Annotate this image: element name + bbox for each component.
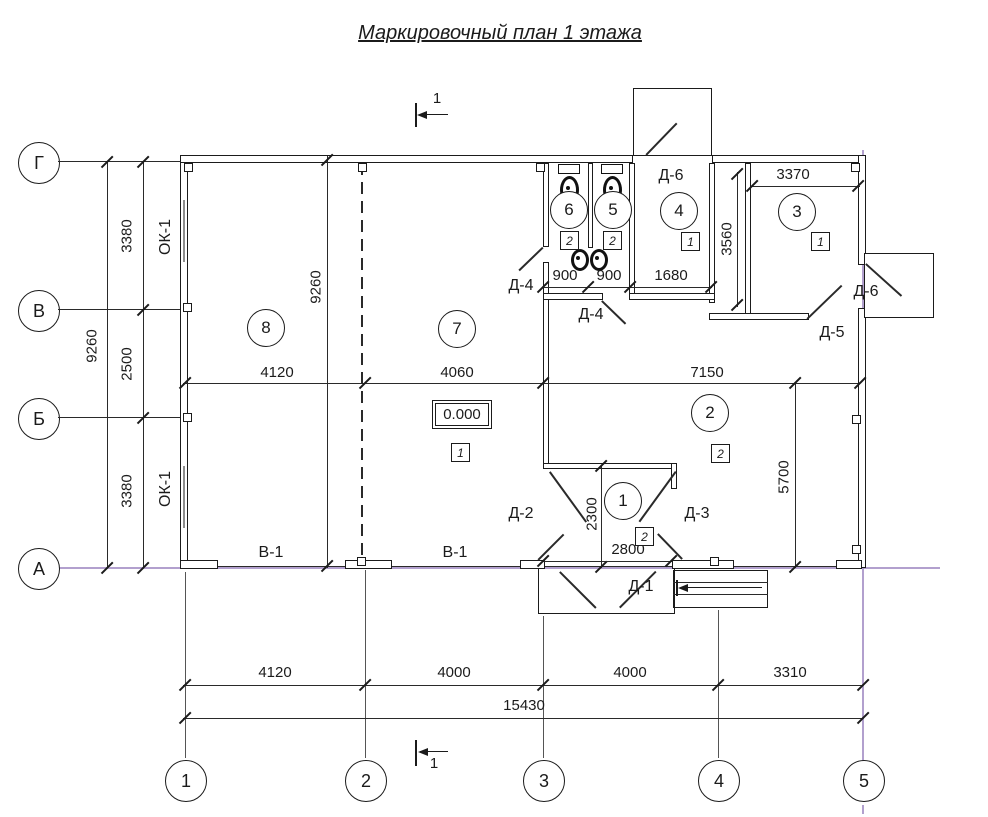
axis-circle-a: А	[18, 548, 60, 590]
dim-bot-1: 4120	[258, 664, 291, 681]
room-circle-4: 4	[660, 192, 698, 230]
dim-vest-h: 2300	[584, 497, 601, 530]
axis-b-line	[58, 417, 180, 418]
wall-right-lower	[858, 308, 866, 568]
wall-node	[851, 163, 860, 172]
type-square-r7: 1	[451, 443, 470, 462]
wall-node	[183, 303, 192, 312]
wall-node	[183, 413, 192, 422]
door-label-d6a: Д-6	[658, 167, 683, 185]
pier-bottom-2	[345, 560, 392, 569]
room-circle-7: 7	[438, 310, 476, 348]
wall-stall-partition	[588, 163, 593, 248]
dim-line-left-total	[107, 162, 108, 568]
step-edge	[673, 594, 768, 595]
dim-line-room3-h	[737, 172, 738, 307]
section-tick-bottom	[415, 740, 417, 766]
vestibule-splay-right	[639, 471, 677, 522]
entrance-porch	[538, 568, 675, 614]
wall-node	[536, 163, 545, 172]
elevation-mark: 0.000	[435, 403, 489, 426]
type-square-r1: 2	[635, 527, 654, 546]
axis-circle-1: 1	[165, 760, 207, 802]
axis-circle-g: Г	[18, 142, 60, 184]
wall-stall5-room4	[629, 163, 635, 296]
rear-porch	[633, 88, 712, 156]
wall-room4-bottom	[629, 293, 715, 300]
dim-wc-2: 900	[596, 267, 621, 284]
dim-line-total	[183, 718, 863, 719]
dim-line-mid	[183, 383, 860, 384]
wall-room3-bottom	[709, 313, 809, 320]
dim-line-left-segments	[143, 162, 144, 568]
dim-line-room3-w	[750, 186, 860, 187]
dim-wc-1: 900	[552, 267, 577, 284]
gate-label-v1a: В-1	[259, 544, 284, 562]
door-d2-swing	[537, 534, 564, 561]
door-d4a-swing	[519, 247, 544, 271]
toilet-dot	[609, 186, 613, 190]
pier-bottom-4	[672, 560, 734, 569]
page-title: Маркировочный план 1 этажа	[358, 22, 642, 45]
wall-vestibule-top	[543, 463, 677, 469]
window-ok1-lower	[180, 466, 188, 528]
basin-dot	[576, 256, 580, 260]
door-d5-swing	[806, 285, 842, 319]
door-d3-swing	[657, 533, 682, 559]
pier-bottom-1	[180, 560, 218, 569]
dim-line-vest-w	[543, 561, 672, 562]
dim-wc-3: 1680	[654, 267, 687, 284]
dim-bot-4: 3310	[773, 664, 806, 681]
dim-total: 15430	[503, 697, 545, 714]
door-label-d4b: Д-4	[578, 306, 603, 324]
type-square-wc6: 2	[560, 231, 579, 250]
basin-dot	[595, 256, 599, 260]
axis-circle-3: 3	[523, 760, 565, 802]
entry-arrow-icon	[678, 584, 688, 592]
wall-lobby-bottom	[543, 293, 603, 300]
dim-b-a: 3380	[119, 474, 136, 507]
axis-circle-4: 4	[698, 760, 740, 802]
ext-line-axis1	[185, 572, 186, 758]
toilet-tank-icon	[601, 164, 623, 174]
floor-plan-canvas: Маркировочный план 1 этажа 1 Г В Б А 926…	[0, 0, 988, 817]
type-square-r3: 1	[811, 232, 830, 251]
ext-line-axis2	[365, 570, 366, 758]
section-label-top: 1	[433, 90, 441, 107]
door-label-d2: Д-2	[508, 505, 533, 523]
section-label-bottom: 1	[430, 755, 438, 772]
wall-node	[710, 557, 719, 566]
axis-circle-5: 5	[843, 760, 885, 802]
room-circle-5: 5	[594, 191, 632, 229]
vestibule-splay-left	[549, 471, 587, 522]
section-arrow-icon	[418, 748, 428, 756]
wall-wc-left-upper	[543, 163, 549, 247]
toilet-dot	[566, 186, 570, 190]
axis-circle-b: Б	[18, 398, 60, 440]
partition-dashed-axis2	[361, 163, 363, 561]
wall-node	[852, 415, 861, 424]
room-circle-1: 1	[604, 482, 642, 520]
dim-mid-2: 4060	[440, 364, 473, 381]
type-square-r2: 2	[711, 444, 730, 463]
dim-line-inner-height	[327, 156, 328, 568]
door-label-d5: Д-5	[819, 324, 844, 342]
dim-room2-h: 5700	[776, 460, 793, 493]
axis-v-line	[58, 309, 180, 310]
gate-label-v1b: В-1	[443, 544, 468, 562]
room-circle-6: 6	[550, 191, 588, 229]
wall-node	[358, 163, 367, 172]
dim-room3-w: 3370	[776, 166, 809, 183]
door-d4b-swing	[601, 300, 626, 324]
dim-line-bottom	[183, 685, 863, 686]
dim-line-vest-h	[601, 466, 602, 568]
dim-room3-h: 3560	[719, 222, 736, 255]
axis-a-line	[25, 567, 940, 569]
entry-arrow-line	[688, 587, 762, 588]
dim-bot-2: 4000	[437, 664, 470, 681]
room-circle-8: 8	[247, 309, 285, 347]
room-circle-2: 2	[691, 394, 729, 432]
axis-circle-v: В	[18, 290, 60, 332]
dim-inner-height: 9260	[308, 270, 325, 303]
section-arrow-icon	[417, 111, 427, 119]
dim-bot-3: 4000	[613, 664, 646, 681]
axis-circle-2: 2	[345, 760, 387, 802]
step-edge	[673, 582, 768, 583]
wall-top-right	[712, 155, 866, 163]
window-ok1-upper	[180, 200, 188, 262]
dim-mid-3: 7150	[690, 364, 723, 381]
door-label-d6b: Д-6	[853, 283, 878, 301]
door-label-d1: Д-1	[628, 578, 653, 596]
dim-g-v: 3380	[119, 219, 136, 252]
dim-v-b: 2500	[119, 347, 136, 380]
ext-line-axis3	[543, 616, 544, 758]
type-square-wc5: 2	[603, 231, 622, 250]
dim-left-total: 9260	[84, 329, 101, 362]
door-label-d3: Д-3	[684, 505, 709, 523]
type-square-r4: 1	[681, 232, 700, 251]
room-circle-3: 3	[778, 193, 816, 231]
window-label-ok1-lower: ОК-1	[157, 471, 175, 507]
wall-node	[184, 163, 193, 172]
pier-bottom-5	[836, 560, 862, 569]
toilet-tank-icon	[558, 164, 580, 174]
axis-g-line	[58, 161, 180, 162]
wall-node	[852, 545, 861, 554]
dim-mid-1: 4120	[260, 364, 293, 381]
wall-top-left	[180, 155, 633, 163]
window-label-ok1-upper: ОК-1	[157, 219, 175, 255]
door-label-d4a: Д-4	[508, 277, 533, 295]
dim-line-room2-h	[795, 383, 796, 568]
wall-node	[357, 557, 366, 566]
